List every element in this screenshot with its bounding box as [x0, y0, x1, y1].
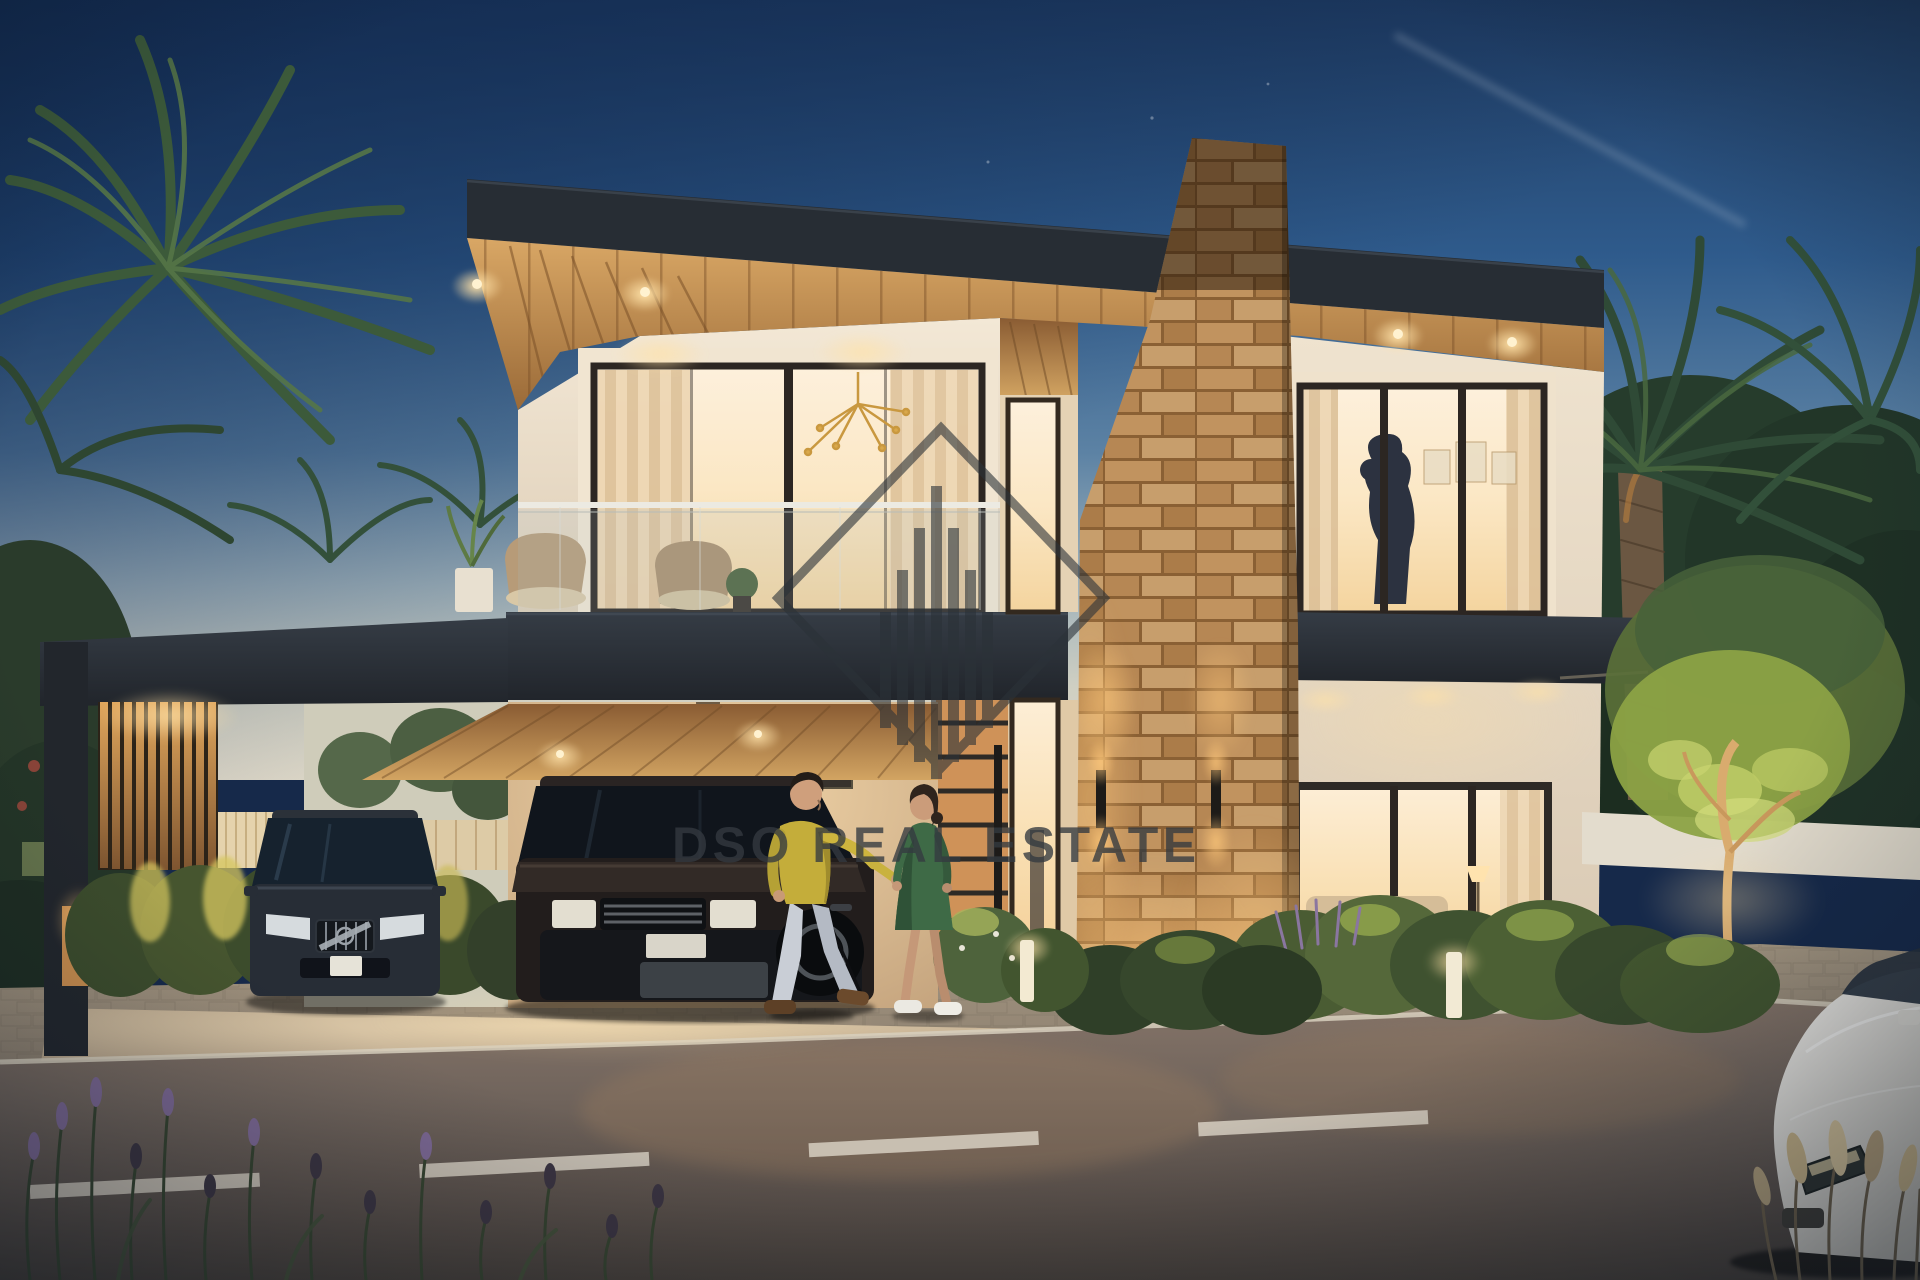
- villa-dusk-rendering: Modern two-storey villa exterior renderi…: [0, 0, 1920, 1280]
- vignette-overlay: [0, 0, 1920, 1280]
- rendering-canvas: Modern two-storey villa exterior renderi…: [0, 0, 1920, 1280]
